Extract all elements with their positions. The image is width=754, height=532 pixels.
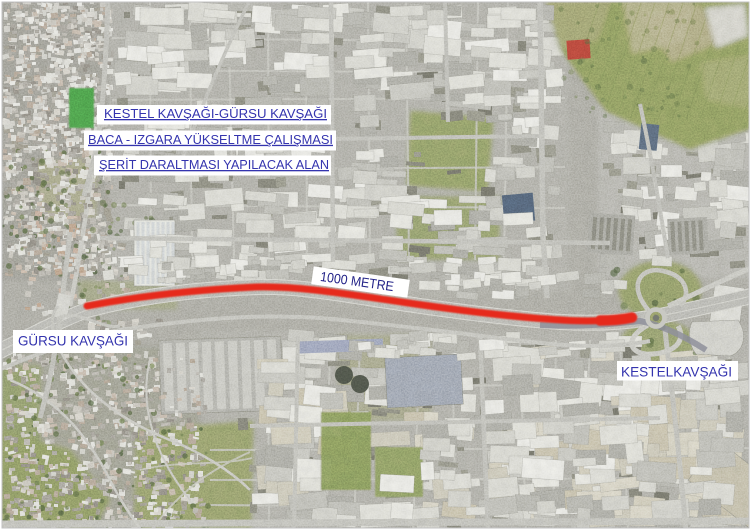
svg-text:KESTEL KAVŞAĞI-GÜRSU KAVŞAĞI: KESTEL KAVŞAĞI-GÜRSU KAVŞAĞI (104, 106, 327, 121)
svg-text:KESTELKAVŞAĞI: KESTELKAVŞAĞI (621, 363, 732, 379)
svg-text:BACA - IZGARA YÜKSELTME ÇALIŞM: BACA - IZGARA YÜKSELTME ÇALIŞMASI (88, 132, 333, 147)
svg-text:ŞERİT DARALTMASI YAPILACAK ALA: ŞERİT DARALTMASI YAPILACAK ALAN (99, 157, 329, 172)
svg-text:GÜRSU KAVŞAĞI: GÜRSU KAVŞAĞI (18, 332, 128, 349)
